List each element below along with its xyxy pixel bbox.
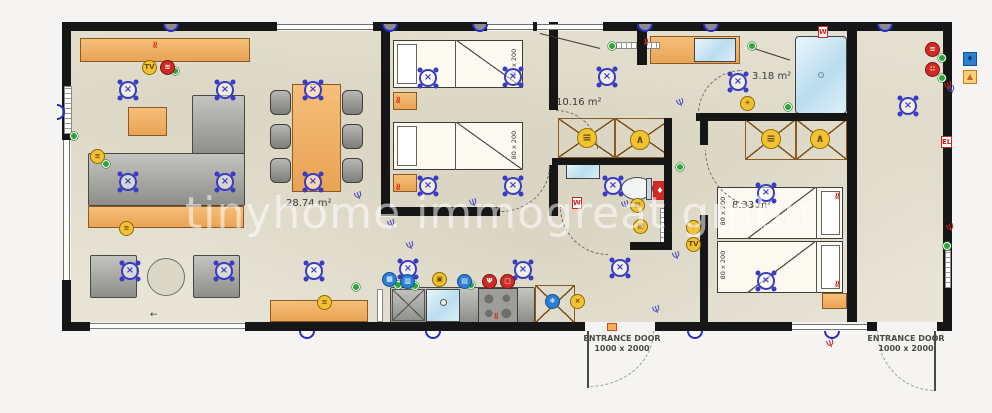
junction-dot-icon: [943, 242, 951, 250]
sliding-door: [90, 323, 245, 329]
junction-dot-icon: [748, 42, 756, 50]
heater-icon: ≈: [150, 41, 159, 48]
bed-size-label: 80 x 200: [510, 125, 518, 165]
ceiling-light-icon: ×: [598, 68, 616, 86]
wall-wc-top: [552, 158, 672, 165]
ceiling-light-icon: ×: [611, 259, 629, 277]
ceiling-light-icon: ×: [419, 69, 437, 87]
wardrobe-icon: ∧: [630, 130, 650, 150]
junction-dot-icon: [784, 103, 792, 111]
ceiling-light-icon: ×: [216, 81, 234, 99]
coffee-table: [128, 107, 167, 136]
wall-bath-bottom: [696, 113, 848, 121]
appliance-badge-icon: ▦: [382, 272, 397, 287]
appliance-badge-icon: ▥: [400, 274, 415, 289]
dining-chair: [270, 124, 291, 149]
heater-icon: ≈: [832, 192, 841, 199]
power-badge-icon: ≡: [925, 42, 940, 57]
control-badge-icon: TV: [142, 60, 157, 75]
room-area-label: 10.16 m²: [556, 97, 602, 108]
ceiling-light-icon: ×: [215, 262, 233, 280]
control-badge-icon: ≡: [90, 149, 105, 164]
heater-icon: ≈: [393, 96, 402, 103]
ceiling-light-icon: ×: [305, 262, 323, 280]
radiator: [64, 86, 72, 134]
outer-wall-bottom: [867, 322, 877, 331]
junction-dot-icon: [938, 54, 946, 62]
dining-chair: [270, 158, 291, 183]
junction-dot-icon: [608, 42, 616, 50]
outer-wall-bottom: [62, 322, 90, 331]
window: [487, 24, 533, 30]
nightstand: [822, 293, 847, 309]
power-badge-icon: ≋: [160, 60, 175, 75]
wall-light-icon: [299, 331, 315, 339]
room-area-label: 3.18 m²: [752, 71, 791, 82]
junction-dot-icon: [676, 163, 684, 171]
outer-wall-bottom: [245, 322, 585, 331]
shower-drain-icon: [818, 72, 824, 78]
wardrobe-icon: ≡: [577, 128, 597, 148]
washer-box: W: [818, 26, 828, 38]
wall-bedroom2-right: [847, 22, 857, 322]
junction-dot-icon: [938, 74, 946, 82]
heater-icon: ≈: [832, 280, 841, 287]
outer-wall-bottom: [655, 322, 792, 331]
window: [537, 24, 603, 30]
appliance-badge-icon: ❄: [545, 294, 560, 309]
ceiling-light-icon: ×: [899, 97, 917, 115]
door-sensor: [607, 323, 617, 331]
control-badge-icon: TV: [686, 237, 701, 252]
control-badge-icon: ≡: [119, 221, 134, 236]
window: [792, 324, 867, 330]
vanity-sink: [694, 38, 736, 62]
kitchen-end-panel: [377, 289, 383, 322]
electrical-box: EL: [941, 136, 952, 148]
outer-wall-bottom: [937, 322, 952, 331]
control-badge-icon: ≡: [317, 295, 332, 310]
bed-pillow: [397, 126, 417, 166]
control-badge-icon: ×: [570, 294, 585, 309]
ceiling-light-icon: ×: [119, 81, 137, 99]
wall-bedroom2-left: [700, 121, 708, 145]
ceiling-light-icon: ×: [729, 73, 747, 91]
control-badge-icon: ▣: [432, 272, 447, 287]
window: [277, 24, 373, 30]
appliance-badge-icon: ▤: [457, 274, 472, 289]
sliding-door-arrow: ←: [150, 310, 158, 320]
wall-light-icon: [425, 331, 441, 339]
junction-dot-icon: [352, 283, 360, 291]
round-table: [147, 258, 185, 296]
ceiling-light-icon: ×: [504, 68, 522, 86]
kitchen-cabinet: [392, 289, 425, 321]
dining-chair: [342, 90, 363, 115]
socket-icon: Ψ: [826, 339, 837, 351]
dining-chair: [270, 90, 291, 115]
wall-wc-bottom: [630, 242, 672, 250]
ceiling-light-icon: ×: [514, 261, 532, 279]
heater-icon: ≈: [641, 38, 650, 45]
wardrobe-icon: ≡: [761, 129, 781, 149]
floor-plan: ♦ ←: [0, 0, 992, 413]
entrance-door-label: ENTRANCE DOOR 1000 x 2000: [576, 334, 668, 354]
faucet-icon: [440, 299, 447, 306]
ceiling-light-icon: ×: [121, 262, 139, 280]
wall-living-bedroom: [381, 22, 390, 216]
window: [63, 140, 70, 280]
bed-pillow: [397, 44, 417, 84]
heater-icon: ≈: [491, 312, 500, 319]
dining-chair: [342, 158, 363, 183]
junction-dot-icon: [70, 132, 78, 140]
sofa-chaise: [192, 95, 245, 155]
power-badge-icon: ∷: [925, 62, 940, 77]
control-badge-icon: ☀: [740, 96, 755, 111]
wardrobe-icon: ∧: [810, 129, 830, 149]
outer-wall-top: [603, 22, 952, 31]
power-badge-icon: ▢: [500, 274, 515, 289]
dining-chair: [342, 124, 363, 149]
watermark: tinyhome immogreat gmbh: [185, 188, 812, 239]
ceiling-light-icon: ×: [757, 272, 775, 290]
wall-light-icon: [687, 331, 703, 339]
bed-size-label: 80 x 200: [719, 245, 727, 285]
water-utility-icon: ♦: [963, 52, 977, 66]
sideboard: [80, 38, 250, 62]
ceiling-light-icon: ×: [119, 173, 137, 191]
radiator: [945, 250, 951, 288]
heat-utility-icon: ▲: [963, 70, 977, 84]
entrance-door-label: ENTRANCE DOOR 1000 x 2000: [860, 334, 952, 354]
power-badge-icon: Ψ: [482, 274, 497, 289]
ceiling-light-icon: ×: [304, 81, 322, 99]
